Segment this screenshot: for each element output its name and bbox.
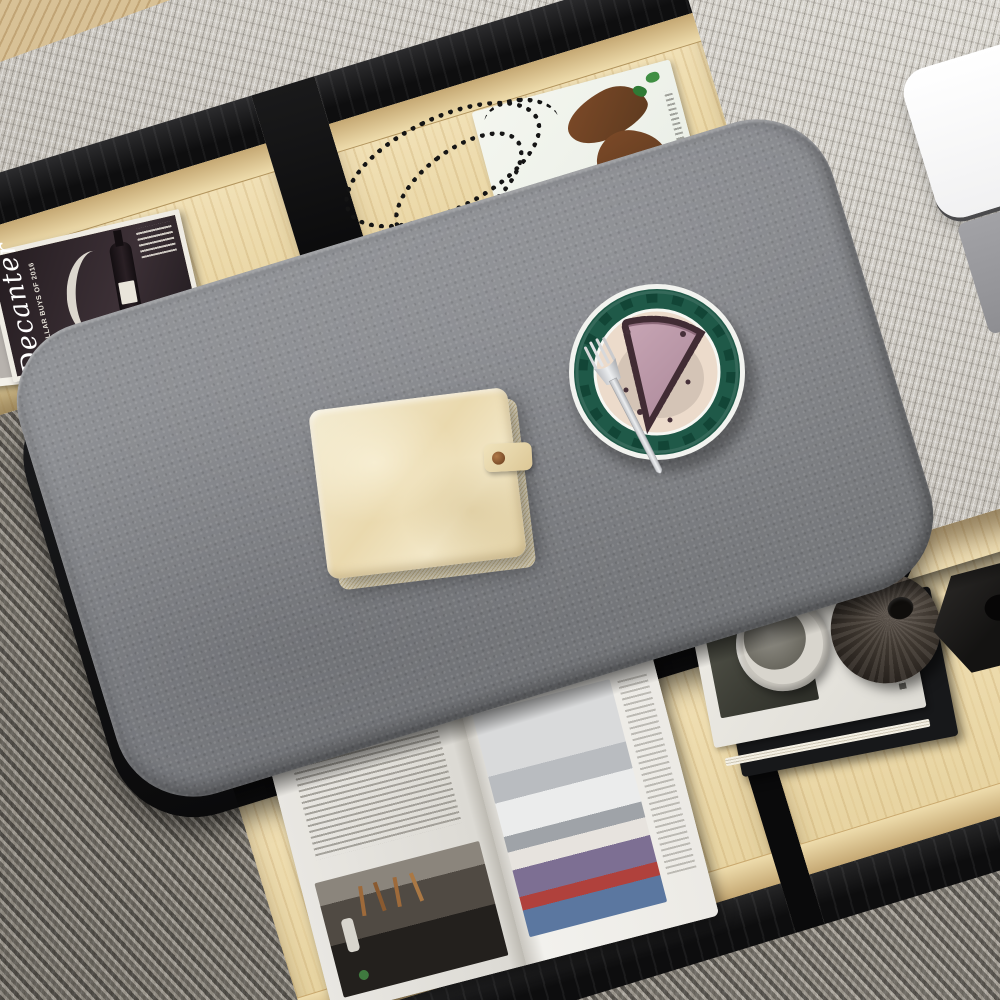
hanging-tool [392,877,401,907]
snap-button [492,451,506,465]
vessel-opening [983,593,1000,623]
hanging-tool [409,872,424,901]
leaf-accent [645,71,661,84]
hanging-tool [358,886,366,916]
photo-stage: Decanter 75 STELLAR BUYS OF 2016 [0,0,1000,1000]
bottle-in-photo [340,917,360,953]
workshop-photo [314,841,508,998]
cover-text-blocks [135,221,177,258]
wine-bottle-label [118,280,138,304]
journal-clasp [483,442,532,472]
leather-journal [308,386,533,588]
green-accent [358,969,370,981]
hanging-tool [373,882,387,912]
cake-plate [548,262,768,512]
journal-cover [308,387,527,580]
